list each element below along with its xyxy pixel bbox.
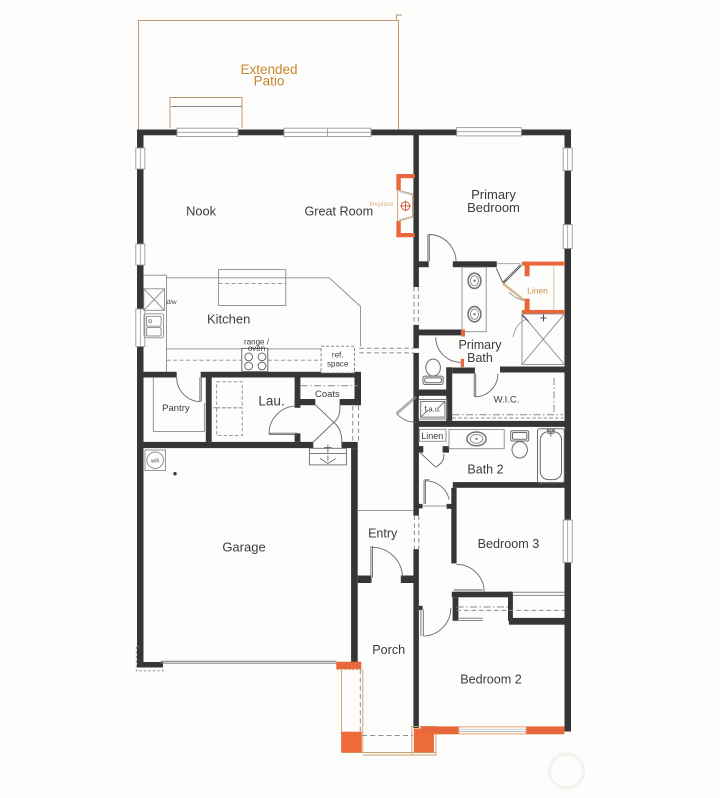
svg-text:ref.: ref. <box>332 351 344 360</box>
svg-text:Porch: Porch <box>372 643 405 657</box>
svg-text:Linen: Linen <box>527 286 548 296</box>
svg-text:Great Room: Great Room <box>305 205 374 219</box>
svg-text:fireplace: fireplace <box>370 201 394 208</box>
svg-text:Bedroom: Bedroom <box>467 200 520 215</box>
svg-text:Pantry: Pantry <box>162 403 190 414</box>
svg-text:Garage: Garage <box>222 540 265 555</box>
svg-text:Lau.: Lau. <box>258 394 284 409</box>
svg-text:oven: oven <box>248 344 265 353</box>
svg-text:Coats: Coats <box>315 389 340 400</box>
svg-text:Linen: Linen <box>421 431 443 441</box>
svg-text:f.a.u.: f.a.u. <box>424 404 441 413</box>
svg-text:Bedroom 2: Bedroom 2 <box>460 673 522 687</box>
svg-text:Nook: Nook <box>186 204 216 219</box>
svg-text:Patio: Patio <box>254 74 285 89</box>
svg-text:d/w: d/w <box>167 299 177 306</box>
svg-text:Bath 2: Bath 2 <box>467 463 503 477</box>
svg-text:Entry: Entry <box>368 527 398 541</box>
svg-text:Bath: Bath <box>467 351 493 365</box>
svg-text:W.I.C.: W.I.C. <box>494 395 520 406</box>
svg-text:Bedroom 3: Bedroom 3 <box>478 537 540 551</box>
svg-text:Kitchen: Kitchen <box>207 312 250 327</box>
svg-text:space: space <box>327 360 349 369</box>
svg-text:Primary: Primary <box>458 338 502 352</box>
svg-text:w/h: w/h <box>151 459 159 465</box>
